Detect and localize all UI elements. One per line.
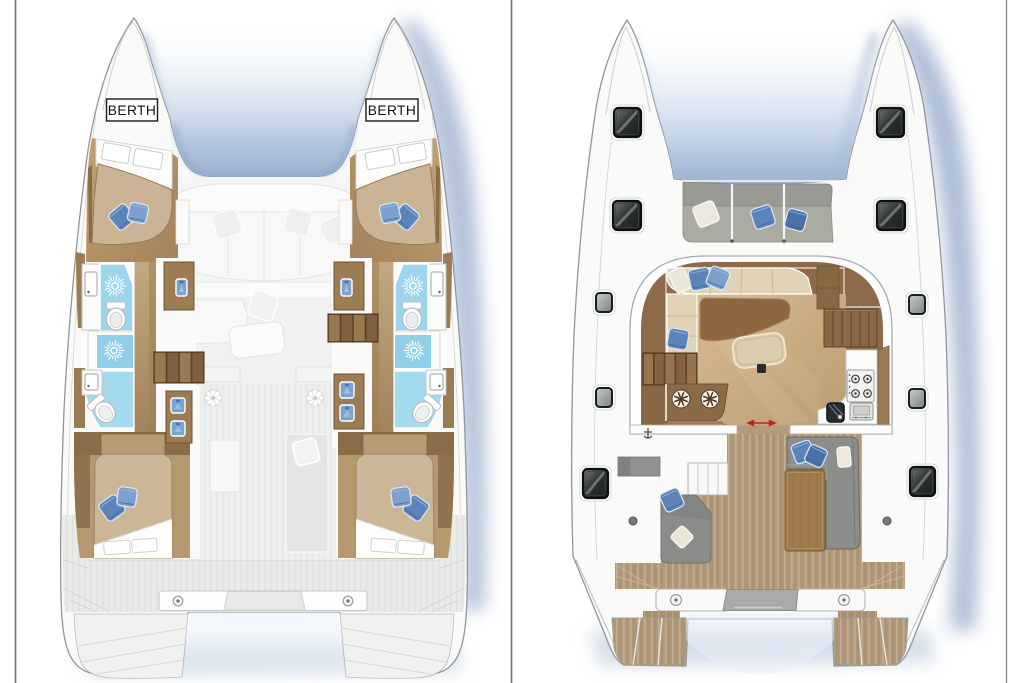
svg-text:BERTH: BERTH (368, 103, 417, 118)
svg-text:BERTH: BERTH (108, 103, 157, 118)
